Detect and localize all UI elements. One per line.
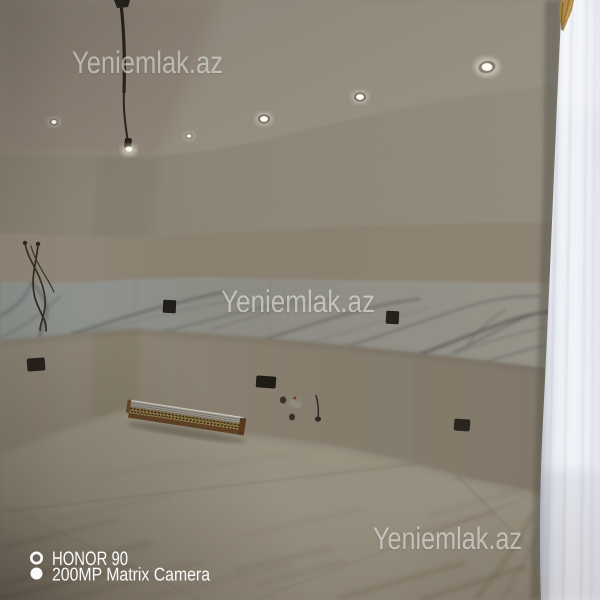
svg-text:Yeniemlak.az: Yeniemlak.az: [72, 45, 223, 80]
svg-text:Yeniemlak.az: Yeniemlak.az: [373, 521, 522, 556]
svg-text:200MP Matrix Camera: 200MP Matrix Camera: [52, 564, 211, 585]
svg-text:Yeniemlak.az: Yeniemlak.az: [221, 284, 375, 319]
